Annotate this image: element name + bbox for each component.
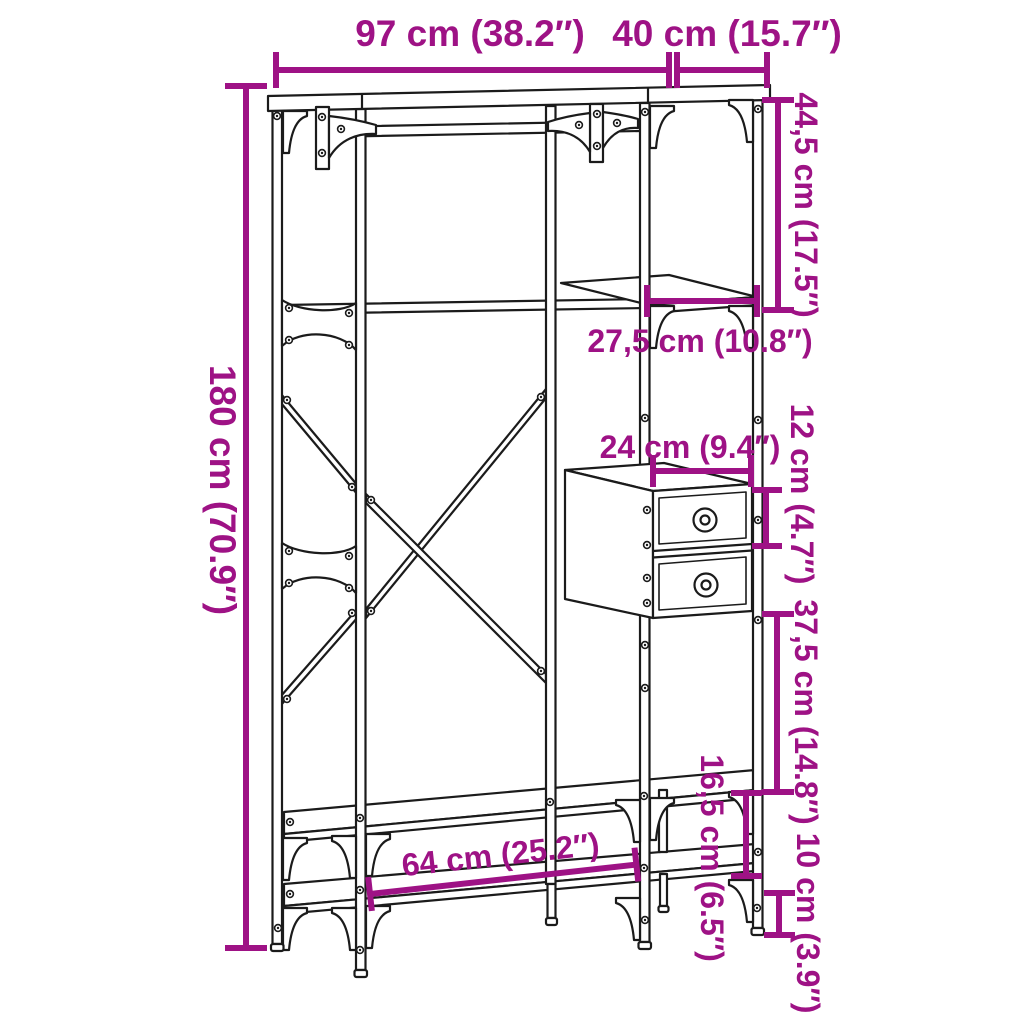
post-left-front [273,106,283,944]
dimension-label: 40 cm (15.7″) [612,13,842,54]
post-middle [546,106,556,884]
drawer-knob-top-inner [701,516,710,525]
wardrobe-dimension-diagram: 97 cm (38.2″) 40 cm (15.7″) 180 cm (70.9… [0,0,1024,1024]
dimension-label: 27,5 cm (10.8″) [587,323,812,359]
drawer-knob-bottom-inner [702,581,711,590]
post-middle-foot [548,884,556,918]
left-diagonal-lower [281,608,358,705]
post-left-back [356,109,366,970]
dimension-label: 37,5 cm (14.8″) [788,599,824,824]
dimension-label: 24 cm (9.4″) [600,429,781,465]
dimension-label: 44,5 cm (17.5″) [788,92,824,317]
dimension-label: 97 cm (38.2″) [355,13,585,54]
dimension-label: 10 cm (3.9″) [790,833,826,1014]
cabinet-side [565,470,653,618]
x-brace-right [366,494,546,683]
dimension-middle-section-height: 37,5 cm (14.8″) [762,599,824,824]
dimension-label: 12 cm (4.7″) [784,404,820,585]
dimension-label: 180 cm (70.9″) [202,365,243,615]
dimension-foot-height: 10 cm (3.9″) [764,833,826,1014]
dimension-upper-shelf-section-height: 44,5 cm (17.5″) [762,92,824,317]
drawer-cabinet [565,463,752,618]
dimension-top-depth: 40 cm (15.7″) [612,13,842,88]
support-back-small-foot [660,874,667,906]
dimension-label: 16,5 cm (6.5″) [694,754,730,961]
product-dimension-diagram-page: 97 cm (38.2″) 40 cm (15.7″) 180 cm (70.9… [0,0,1024,1024]
dimension-top-width: 97 cm (38.2″) [276,13,669,88]
post-right-outer [753,99,763,928]
dimension-total-height: 180 cm (70.9″) [202,86,267,948]
left-diagonal-upper [281,394,358,495]
top-board [268,85,770,111]
